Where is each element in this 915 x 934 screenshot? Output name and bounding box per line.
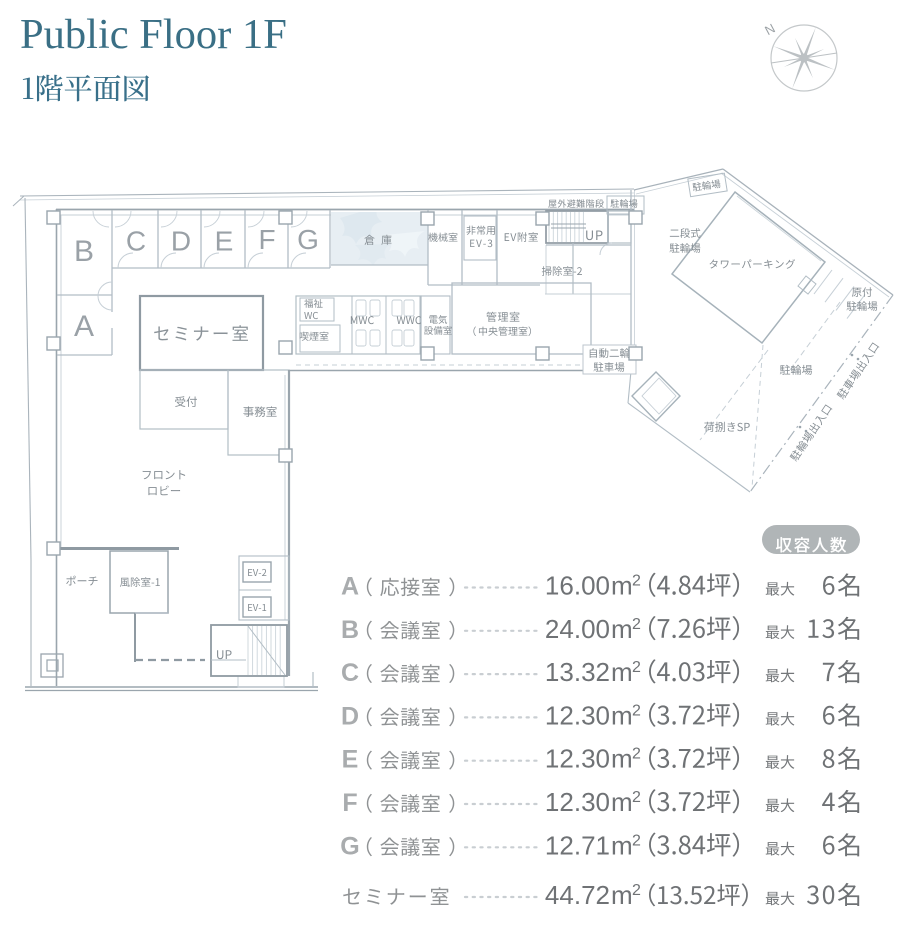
svg-text:2: 2 (632, 746, 641, 763)
svg-text:m: m (611, 744, 633, 774)
svg-text:m: m (611, 880, 633, 910)
svg-text:44.72: 44.72 (545, 880, 610, 910)
svg-text:m: m (611, 700, 633, 730)
svg-text:m: m (611, 571, 633, 601)
svg-text:D: D (171, 226, 191, 257)
svg-text:m: m (611, 787, 633, 817)
svg-text:2: 2 (632, 702, 641, 719)
svg-text:2: 2 (632, 789, 641, 806)
svg-text:2: 2 (632, 659, 641, 676)
svg-text:E: E (215, 226, 234, 257)
svg-text:G: G (340, 832, 359, 860)
svg-text:F: F (258, 224, 275, 255)
svg-text:C: C (126, 226, 146, 257)
svg-text:2: 2 (632, 616, 641, 633)
svg-text:12.30: 12.30 (545, 787, 610, 817)
svg-text:16.00: 16.00 (545, 571, 610, 601)
svg-text:24.00: 24.00 (545, 614, 610, 644)
svg-text:Public Floor 1F: Public Floor 1F (20, 11, 287, 58)
svg-text:m: m (611, 657, 633, 687)
svg-text:D: D (341, 702, 359, 730)
svg-text:B: B (74, 235, 94, 268)
svg-text:12.71: 12.71 (545, 830, 610, 860)
svg-text:12.30: 12.30 (545, 700, 610, 730)
svg-text:F: F (342, 789, 357, 817)
svg-text:m: m (611, 830, 633, 860)
svg-text:2: 2 (632, 832, 641, 849)
svg-text:E: E (342, 746, 359, 774)
svg-text:C: C (341, 659, 359, 687)
svg-text:A: A (74, 310, 94, 343)
svg-text:12.30: 12.30 (545, 744, 610, 774)
svg-text:A: A (341, 573, 359, 601)
svg-text:N: N (762, 21, 777, 39)
svg-text:m: m (611, 614, 633, 644)
svg-text:2: 2 (632, 573, 641, 590)
svg-text:G: G (297, 224, 319, 255)
svg-text:13.32: 13.32 (545, 657, 610, 687)
svg-text:B: B (341, 616, 359, 644)
svg-text:2: 2 (632, 882, 641, 899)
